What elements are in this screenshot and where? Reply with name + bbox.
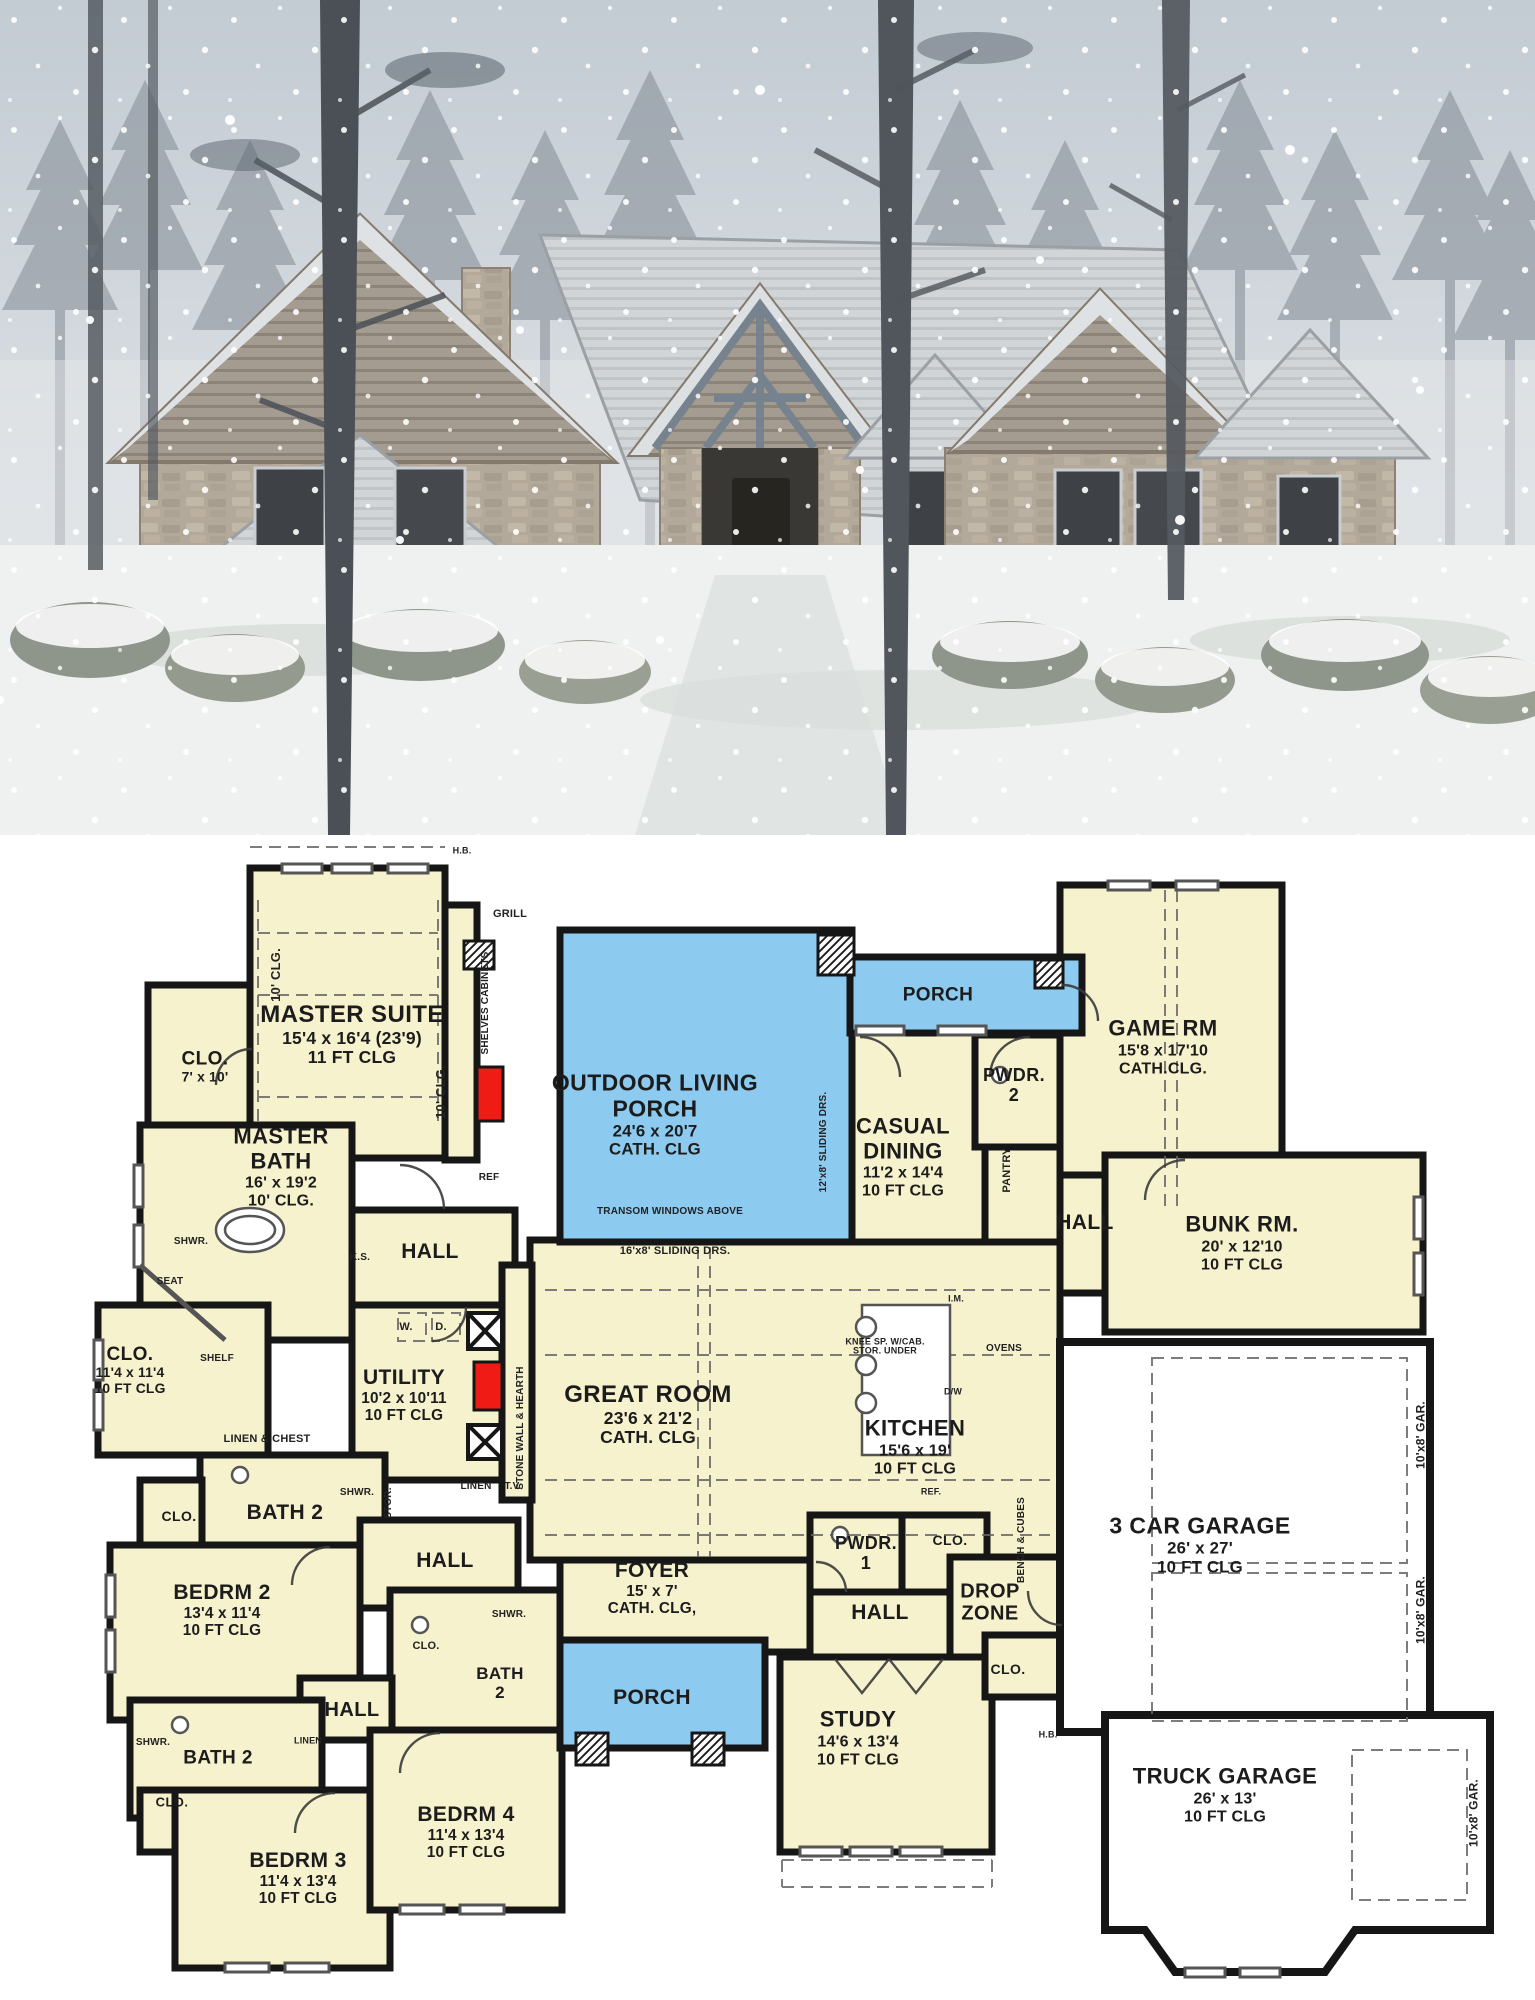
floor-plan-drawing	[0, 835, 1535, 2000]
floor-plan: MASTER SUITE15'4 x 16'4 (23'9)11 FT CLGC…	[0, 835, 1535, 2000]
garages	[1060, 1342, 1490, 1972]
exterior-photo-art	[0, 0, 1535, 835]
page: MASTER SUITE15'4 x 16'4 (23'9)11 FT CLGC…	[0, 0, 1535, 2000]
exterior-photo	[0, 0, 1535, 835]
falling-snow	[0, 0, 1535, 835]
